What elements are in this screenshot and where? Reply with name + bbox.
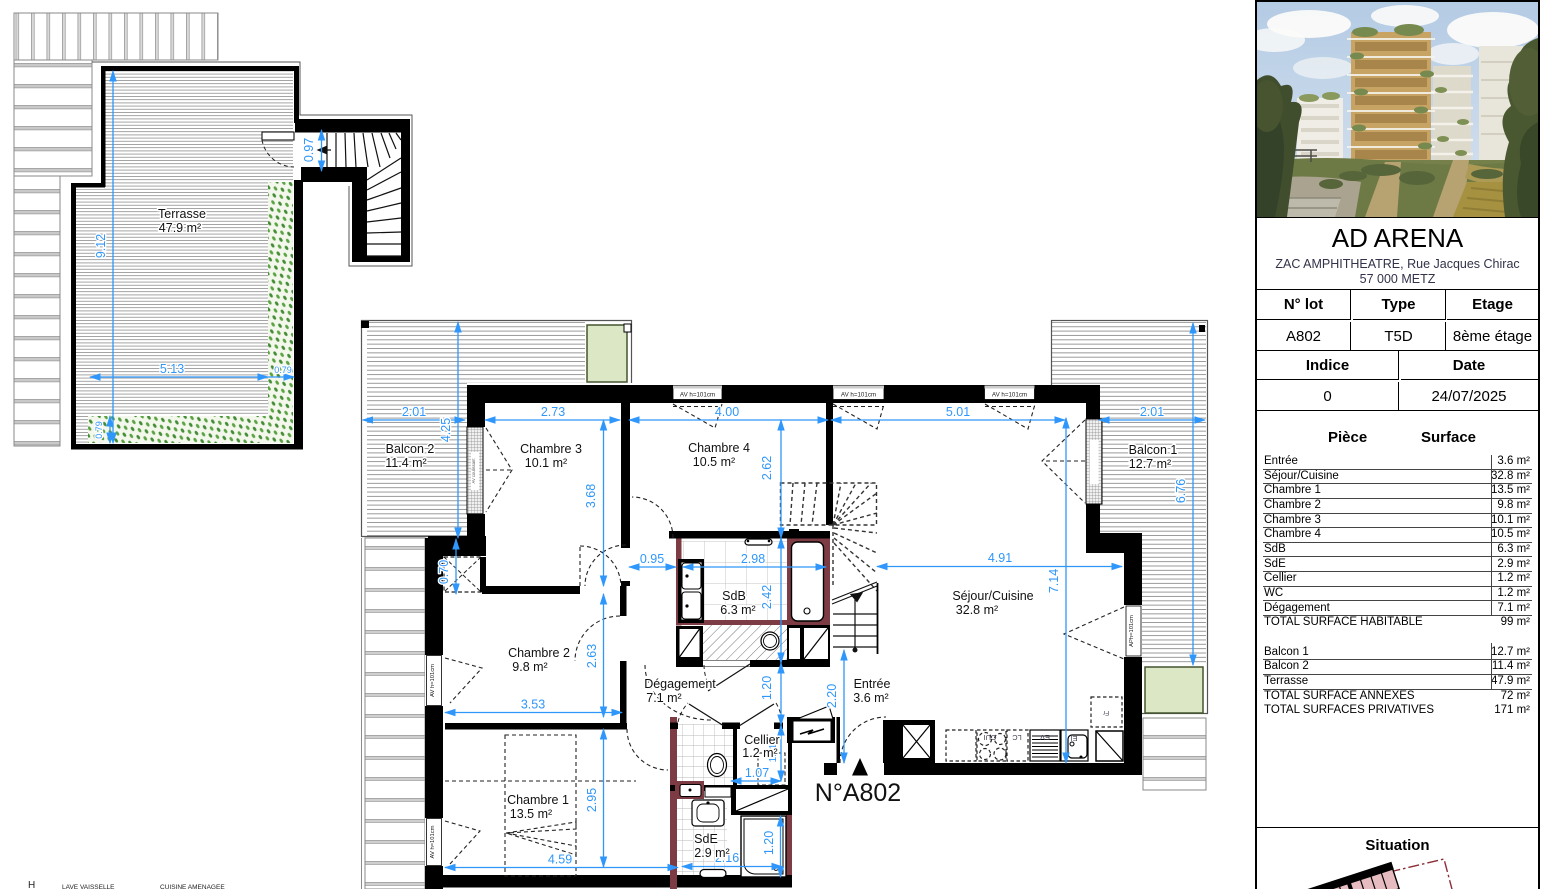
- svg-text:Balcon 1: Balcon 1: [1129, 443, 1178, 457]
- svg-text:0.95: 0.95: [640, 552, 664, 566]
- svg-text:Séjour/Cuisine: Séjour/Cuisine: [952, 589, 1033, 603]
- svg-text:9.12: 9.12: [94, 234, 108, 258]
- svg-text:AV h=101cm: AV h=101cm: [430, 825, 436, 858]
- svg-text:6.3 m²: 6.3 m²: [720, 603, 755, 617]
- svg-text:9.8 m²: 9.8 m²: [512, 660, 547, 674]
- svg-text:6.76: 6.76: [1174, 479, 1188, 503]
- svg-text:2.20: 2.20: [825, 684, 839, 708]
- svg-text:47.9 m²: 47.9 m²: [159, 221, 201, 235]
- svg-text:Dégagement: Dégagement: [644, 677, 716, 691]
- svg-text:2.9 m²: 2.9 m²: [694, 846, 729, 860]
- svg-text:2.01: 2.01: [402, 405, 426, 419]
- svg-text:1.07: 1.07: [745, 766, 769, 780]
- svg-text:EI: EI: [1070, 734, 1077, 743]
- svg-text:4.00: 4.00: [715, 405, 739, 419]
- svg-text:Chambre 3: Chambre 3: [520, 442, 582, 456]
- svg-text:2.73: 2.73: [541, 405, 565, 419]
- svg-text:11.4 m²: 11.4 m²: [385, 456, 426, 470]
- svg-text:Fr: Fr: [1102, 709, 1109, 716]
- svg-text:AV coulissant: AV coulissant: [471, 458, 476, 484]
- svg-text:7.1 m²: 7.1 m²: [646, 691, 681, 705]
- svg-text:10.1 m²: 10.1 m²: [525, 456, 567, 470]
- svg-text:Cellier: Cellier: [744, 733, 779, 747]
- svg-text:AV h=101cm: AV h=101cm: [430, 664, 436, 697]
- svg-text:Entrée: Entrée: [854, 677, 891, 691]
- svg-text:32.8 m²: 32.8 m²: [956, 603, 998, 617]
- svg-text:3.53: 3.53: [521, 698, 545, 712]
- svg-text:LC: LC: [1012, 733, 1022, 742]
- svg-text:SdE: SdE: [694, 832, 718, 846]
- svg-text:AV h=101cm: AV h=101cm: [680, 392, 715, 399]
- svg-text:EV: EV: [1040, 733, 1050, 742]
- svg-text:1.20: 1.20: [760, 676, 774, 700]
- svg-text:2.42: 2.42: [760, 585, 774, 609]
- svg-text:7.14: 7.14: [1047, 569, 1061, 593]
- svg-text:2.01: 2.01: [1140, 405, 1164, 419]
- svg-text:2.98: 2.98: [741, 552, 765, 566]
- svg-text:Chambre 4: Chambre 4: [688, 441, 750, 455]
- svg-text:0.79: 0.79: [274, 365, 292, 375]
- svg-text:Chambre 2: Chambre 2: [508, 646, 570, 660]
- svg-text:Chambre 1: Chambre 1: [507, 793, 569, 807]
- svg-text:CUISINE AMENAGEE: CUISINE AMENAGEE: [160, 884, 225, 889]
- svg-text:4.91: 4.91: [988, 551, 1012, 565]
- svg-text:2.62: 2.62: [760, 456, 774, 480]
- svg-text:2.95: 2.95: [585, 788, 599, 812]
- svg-text:13.5 m²: 13.5 m²: [510, 807, 552, 821]
- svg-text:N°A802: N°A802: [815, 779, 901, 807]
- svg-text:4.25: 4.25: [439, 418, 453, 442]
- svg-text:0.97: 0.97: [302, 138, 316, 162]
- svg-text:AV h=101cm: AV h=101cm: [992, 392, 1027, 399]
- svg-text:1.2 m²: 1.2 m²: [742, 746, 777, 760]
- svg-text:LAVE VAISSELLE: LAVE VAISSELLE: [62, 884, 115, 889]
- svg-text:5.13: 5.13: [160, 362, 184, 376]
- svg-text:Terrasse: Terrasse: [158, 207, 206, 221]
- svg-text:0.70: 0.70: [437, 560, 451, 584]
- svg-text:AV h=101cm: AV h=101cm: [841, 392, 876, 399]
- svg-text:5.01: 5.01: [946, 405, 970, 419]
- svg-text:10.5 m²: 10.5 m²: [693, 455, 735, 469]
- svg-text:Balcon 2: Balcon 2: [386, 442, 435, 456]
- svg-text:CUI: CUI: [984, 733, 997, 742]
- svg-text:SdB: SdB: [722, 589, 746, 603]
- svg-text:3.68: 3.68: [584, 484, 598, 508]
- svg-text:4.59: 4.59: [548, 853, 572, 867]
- svg-text:2.63: 2.63: [585, 644, 599, 668]
- svg-text:12.7 m²: 12.7 m²: [1129, 457, 1171, 471]
- svg-text:H: H: [28, 880, 35, 889]
- svg-text:0.79: 0.79: [94, 421, 104, 439]
- svg-text:3.6 m²: 3.6 m²: [853, 691, 888, 705]
- svg-text:APh=101cm: APh=101cm: [1129, 615, 1135, 647]
- svg-text:1.20: 1.20: [762, 831, 776, 855]
